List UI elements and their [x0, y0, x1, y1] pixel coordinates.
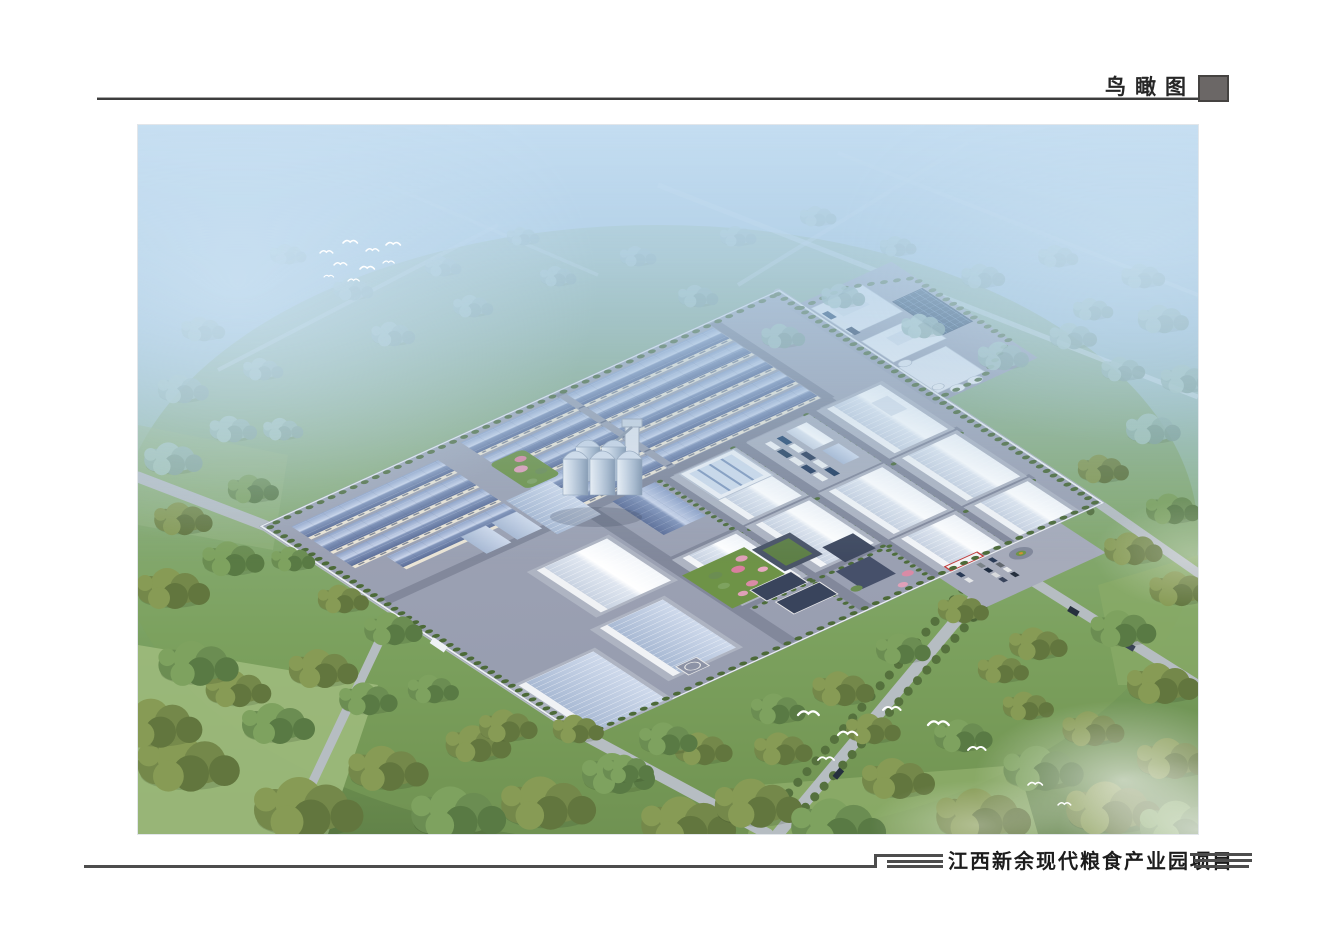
- footer-left-stripes: [874, 854, 943, 857]
- aerial-rendering: [137, 124, 1199, 835]
- footer-right-stripes: [1190, 853, 1252, 856]
- header-rule: [97, 97, 1229, 100]
- project-name: 江西新余现代粮食产业园项目: [948, 849, 1192, 875]
- haze-overlay: [138, 125, 1198, 834]
- footer-rule: [84, 865, 875, 868]
- page-title: 鸟瞰图: [1105, 71, 1195, 101]
- presentation-sheet: 鸟瞰图: [0, 0, 1333, 943]
- title-block-square: [1198, 75, 1229, 102]
- aerial-rendering-image: [138, 125, 1198, 834]
